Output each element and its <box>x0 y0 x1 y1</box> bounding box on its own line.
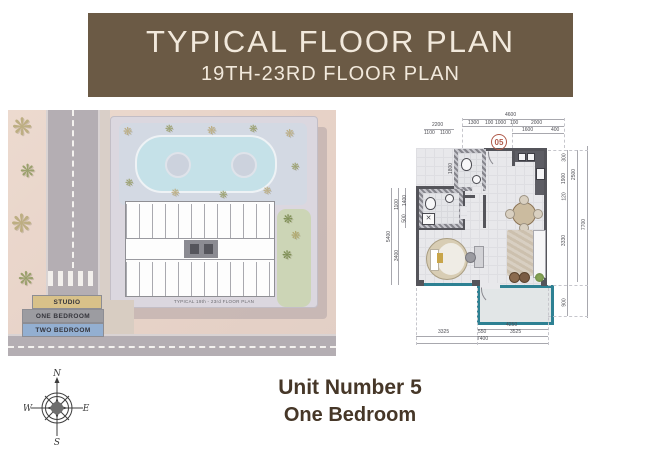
compass-north-label: N <box>52 369 62 379</box>
bedroom-window <box>418 283 477 286</box>
dim-label: 1400 <box>403 195 408 206</box>
dim-label: 7700 <box>582 219 587 230</box>
bathroom-1 <box>454 149 486 191</box>
dim-label: 3525 <box>510 330 521 335</box>
dim-label: 400 <box>551 128 559 133</box>
palm-tree-icon: ❋ <box>285 129 294 140</box>
wall <box>465 195 475 198</box>
desk-chair <box>465 252 476 263</box>
wall <box>472 280 480 286</box>
garden-strip: ❋ ❋ ❋ <box>277 209 311 307</box>
dim-line <box>512 133 564 134</box>
compass-rose: N S E W <box>24 368 90 446</box>
dining-chair <box>533 209 543 219</box>
ottoman <box>519 272 530 283</box>
extension-line <box>416 288 417 345</box>
palm-tree-icon: ❋ <box>291 163 299 173</box>
building-plot: ❋ ❋ ❋ ❋ ❋ ❋ ❋ ❋ ❋ ❋ ❋ ❋ ❋ T <box>110 116 318 308</box>
unit-caption-line2: One Bedroom <box>200 404 500 427</box>
dim-label: 2500 <box>572 169 577 180</box>
unit-number-badge: 05 <box>491 134 507 150</box>
dim-label: 2000 <box>531 121 542 126</box>
dim-label: 300 <box>563 153 568 161</box>
toilet-icon <box>461 158 472 171</box>
dim-label: 120 <box>563 192 568 200</box>
palm-tree-icon: ❋ <box>18 270 34 289</box>
unit-floor-plan: ✕ 05 <box>388 110 660 360</box>
palm-tree-icon: ❋ <box>207 126 216 137</box>
shrub-icon: ❋ <box>291 231 300 242</box>
palm-tree-icon: ❋ <box>249 125 257 135</box>
dim-balcony-width: 4250 <box>506 323 517 328</box>
bathroom-door-gap <box>472 186 483 193</box>
compass-south-label: S <box>54 438 60 446</box>
extension-line <box>548 285 588 286</box>
legend-item-studio: STUDIO <box>32 295 102 309</box>
dim-bottom-total: 7400 <box>477 337 488 342</box>
dim-top-total: 4600 <box>505 113 516 118</box>
dining-chair <box>505 209 515 219</box>
tower-floor-plan-overlay <box>125 201 275 297</box>
header-banner: TYPICAL FLOOR PLAN 19TH-23RD FLOOR PLAN <box>88 13 573 97</box>
shrub-icon: ❋ <box>282 249 292 261</box>
palm-tree-icon: ❋ <box>125 179 133 189</box>
plant-icon <box>535 273 544 282</box>
unit-caption-line1: Unit Number 5 <box>200 376 500 400</box>
extension-line <box>548 150 588 151</box>
page-title: TYPICAL FLOOR PLAN <box>146 24 515 60</box>
dim-label: 1000 <box>495 121 506 126</box>
dining-chair <box>519 195 529 205</box>
wall <box>416 280 424 286</box>
dim-line <box>416 343 548 344</box>
swimming-pool <box>135 135 277 193</box>
compass-east-label: E <box>82 404 90 414</box>
accent-pillow <box>437 253 443 263</box>
dim-label: 100 <box>510 121 518 126</box>
crosswalk <box>48 271 98 286</box>
legend-label: ONE BEDROOM <box>36 313 90 320</box>
pool-island <box>165 152 191 178</box>
dim-label: 1600 <box>522 128 533 133</box>
dim-label: 500 <box>403 214 408 222</box>
dim-label: 3325 <box>438 330 449 335</box>
bathroom-door-gap <box>460 206 467 219</box>
dim-label: 5400 <box>387 231 392 242</box>
legend-item-two-bedroom: TWO BEDROOM <box>22 323 104 337</box>
extension-line <box>564 118 565 148</box>
stove-icon <box>527 153 535 161</box>
legend-item-one-bedroom: ONE BEDROOM <box>22 309 104 323</box>
fridge-icon <box>536 168 545 180</box>
compass-west-label: W <box>24 404 33 414</box>
brochure-page: TYPICAL FLOOR PLAN 19TH-23RD FLOOR PLAN … <box>0 0 660 462</box>
dim-label: 100 <box>485 121 493 126</box>
road-center-line <box>8 346 336 348</box>
dim-line <box>577 150 578 282</box>
bed <box>426 238 468 280</box>
legend-label: TWO BEDROOM <box>35 327 90 334</box>
palm-tree-icon: ❋ <box>219 191 227 201</box>
dim-label: 1100 <box>440 131 451 136</box>
wall <box>483 195 486 228</box>
pool-deck: ❋ ❋ ❋ ❋ ❋ ❋ ❋ ❋ ❋ ❋ <box>119 123 307 205</box>
palm-tree-icon: ❋ <box>171 189 179 199</box>
washing-machine-icon: ✕ <box>422 213 435 225</box>
bathroom-2: ✕ <box>419 189 463 228</box>
site-plan: ❋ ❋ ❋ ❋ ❋ ❋ ❋ ❋ ❋ ❋ ❋ ❋ ❋ ❋ ❋ <box>8 110 336 356</box>
extension-line <box>462 118 463 148</box>
dim-label: 3400 <box>395 250 400 261</box>
shrub-icon: ❋ <box>283 213 293 225</box>
elevator-shaft <box>204 244 213 254</box>
horizontal-road <box>8 334 336 356</box>
palm-tree-icon: ❋ <box>11 212 32 237</box>
dim-left-top: 2200 <box>432 123 443 128</box>
sofa <box>533 230 546 278</box>
unit-caption: Unit Number 5 One Bedroom <box>200 376 500 427</box>
dim-label: 3330 <box>562 235 567 246</box>
dim-label: 1800 <box>449 163 454 174</box>
dim-label: 550 <box>478 330 486 335</box>
palm-tree-icon: ❋ <box>12 116 32 140</box>
palm-tree-icon: ❋ <box>123 127 132 138</box>
tower-plan-caption: TYPICAL 19th - 23rd FLOOR PLAN <box>111 299 317 304</box>
palm-tree-icon: ❋ <box>165 125 173 135</box>
dim-line <box>462 126 564 127</box>
dim-line <box>567 150 568 316</box>
sink-icon <box>472 175 481 184</box>
toilet-icon <box>425 197 436 210</box>
living-room-rug <box>507 230 533 276</box>
dim-line <box>587 146 588 318</box>
elevator-shaft <box>190 244 199 254</box>
sink-icon <box>445 194 454 203</box>
extension-line <box>548 316 588 317</box>
palm-tree-icon: ❋ <box>263 187 271 197</box>
road-center-line <box>72 110 74 268</box>
dim-label: 1100 <box>395 199 400 210</box>
dim-label: 1300 <box>468 121 479 126</box>
pool-island <box>231 152 257 178</box>
palm-tree-icon: ❋ <box>20 162 35 180</box>
dim-label: 1900 <box>562 173 567 184</box>
kitchen-sink-icon <box>518 153 526 161</box>
dim-label: 1100 <box>424 131 435 136</box>
dim-label: 900 <box>563 298 568 306</box>
page-subtitle: 19TH-23RD FLOOR PLAN <box>201 63 460 86</box>
legend-label: STUDIO <box>54 299 81 306</box>
